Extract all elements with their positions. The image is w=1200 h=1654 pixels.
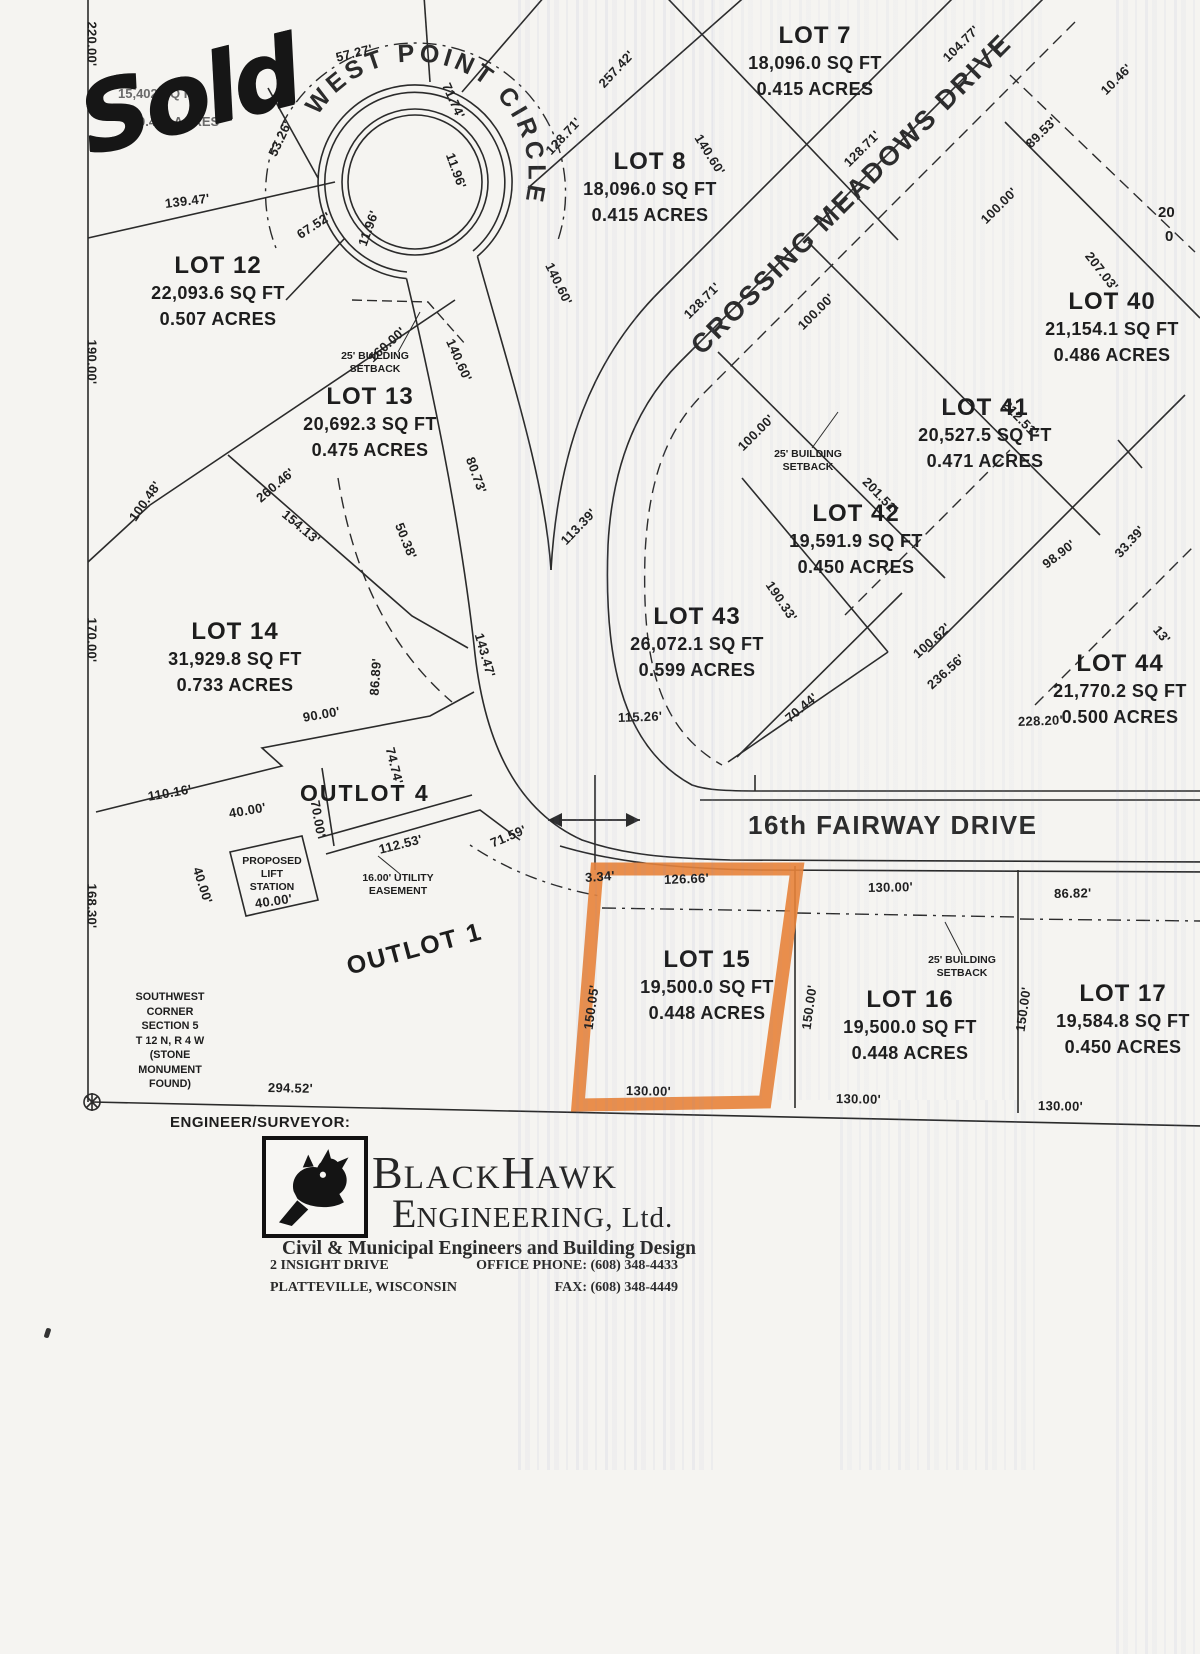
lot-area-acres: 0.599 ACRES xyxy=(630,657,764,683)
firm-address-line1: 2 INSIGHT DRIVE xyxy=(270,1258,389,1274)
dimension-label: 115.26' xyxy=(618,708,663,725)
dimension-label: 3.34' xyxy=(584,868,615,885)
lot-label: LOT 16 19,500.0 SQ FT 0.448 ACRES xyxy=(843,986,977,1066)
monument-note: SOUTHWEST CORNER SECTION 5 T 12 N, R 4 W… xyxy=(136,990,205,1092)
plat-linework: WEST POINT CIRCLE CROSSING MEADOWS DRIVE… xyxy=(0,0,1200,1654)
lot-area-sqft: 22,093.6 SQ FT xyxy=(151,280,285,306)
dimension-label: 130.00' xyxy=(868,879,913,895)
lot-area-sqft: 26,072.1 SQ FT xyxy=(630,631,764,657)
firm-tagline: Civil & Municipal Engineers and Building… xyxy=(282,1238,696,1260)
lot-area-sqft: 21,770.2 SQ FT xyxy=(1053,678,1187,704)
lot-name: LOT 12 xyxy=(151,252,285,280)
lot-area-acres: 0.415 ACRES xyxy=(748,76,882,102)
lot-area-acres: 0.448 ACRES xyxy=(640,1000,774,1026)
dimension-label: 86.82' xyxy=(1054,885,1092,901)
partial-lot-text: 20 xyxy=(1158,204,1175,221)
lot-area-acres: 0.471 ACRES xyxy=(918,448,1052,474)
firm-name-part: NGINEERING, Ltd. xyxy=(416,1202,673,1234)
surveyor-heading: ENGINEER/SURVEYOR: xyxy=(170,1114,350,1131)
lot-name: LOT 7 xyxy=(748,22,882,50)
lot-area-sqft: 18,096.0 SQ FT xyxy=(583,176,717,202)
setback-note-line: SETBACK xyxy=(774,461,842,474)
lot-name: LOT 41 xyxy=(918,394,1052,422)
street-name-16th-fairway-drive: 16th FAIRWAY DRIVE xyxy=(748,810,1038,840)
lot-name: LOT 8 xyxy=(583,148,717,176)
dimension-label: 220.00' xyxy=(85,22,100,67)
dimension-label: 294.52' xyxy=(268,1080,313,1096)
plat-map-page: WEST POINT CIRCLE CROSSING MEADOWS DRIVE… xyxy=(0,0,1200,1654)
dimension-label: 168.30' xyxy=(85,884,100,929)
dimension-label: 190.00' xyxy=(85,340,100,385)
lot-area-sqft: 18,096.0 SQ FT xyxy=(748,50,882,76)
lot-name: LOT 16 xyxy=(843,986,977,1014)
lot-name: LOT 40 xyxy=(1045,288,1179,316)
lot-area-sqft: 31,929.8 SQ FT xyxy=(168,646,302,672)
lot-name: LOT 14 xyxy=(168,618,302,646)
setback-note-line: SETBACK xyxy=(928,967,996,980)
lot-label: LOT 43 26,072.1 SQ FT 0.599 ACRES xyxy=(630,603,764,683)
lot-label: LOT 12 22,093.6 SQ FT 0.507 ACRES xyxy=(151,252,285,332)
dimension-label: 228.20' xyxy=(1018,712,1063,729)
lift-station-line: PROPOSED xyxy=(242,855,302,868)
monument-note-line: T 12 N, R 4 W xyxy=(136,1034,205,1049)
easement-note-line: EASEMENT xyxy=(362,885,433,898)
lot-area-sqft: 19,584.8 SQ FT xyxy=(1056,1008,1190,1034)
monument-note-line: MONUMENT xyxy=(136,1063,205,1078)
two-way-arrow-icon xyxy=(548,813,640,827)
lot-label: LOT 42 19,591.9 SQ FT 0.450 ACRES xyxy=(789,500,923,580)
lot-name: LOT 42 xyxy=(789,500,923,528)
lot-area-sqft: 19,500.0 SQ FT xyxy=(843,1014,977,1040)
lot-area-acres: 0.733 ACRES xyxy=(168,672,302,698)
utility-easement-note: 16.00' UTILITY EASEMENT xyxy=(362,872,433,898)
lot-area-sqft: 19,500.0 SQ FT xyxy=(640,974,774,1000)
lot-label: LOT 14 31,929.8 SQ FT 0.733 ACRES xyxy=(168,618,302,698)
monument-note-line: SECTION 5 xyxy=(136,1019,205,1034)
dimension-label: 126.66' xyxy=(664,870,709,887)
lot-name: LOT 43 xyxy=(630,603,764,631)
lot-area-sqft: 20,692.3 SQ FT xyxy=(303,411,437,437)
lot-name: LOT 13 xyxy=(303,383,437,411)
building-setback-note: 25' BUILDING SETBACK xyxy=(774,448,842,474)
lot-area-acres: 0.500 ACRES xyxy=(1053,704,1187,730)
dimension-label: 170.00' xyxy=(85,618,100,663)
lift-station-line: LIFT xyxy=(242,868,302,881)
dimension-label: 130.00' xyxy=(1038,1098,1083,1114)
monument-note-line: (STONE xyxy=(136,1048,205,1063)
firm-name-part: E xyxy=(392,1191,416,1236)
lot-area-acres: 0.450 ACRES xyxy=(789,554,923,580)
lot-area-acres: 0.450 ACRES xyxy=(1056,1034,1190,1060)
hawk-icon xyxy=(266,1140,356,1226)
easement-note-line: 16.00' UTILITY xyxy=(362,872,433,885)
lot-name: LOT 15 xyxy=(640,946,774,974)
lift-station-line: STATION xyxy=(242,881,302,894)
lot-area-acres: 0.486 ACRES xyxy=(1045,342,1179,368)
lot-area-sqft: 21,154.1 SQ FT xyxy=(1045,316,1179,342)
lot-area-acres: 0.415 ACRES xyxy=(583,202,717,228)
monument-note-line: SOUTHWEST xyxy=(136,990,205,1005)
lot-name: LOT 17 xyxy=(1056,980,1190,1008)
blackhawk-logo xyxy=(262,1136,368,1238)
dimension-label: 130.00' xyxy=(836,1091,881,1107)
firm-fax: FAX: (608) 348-4449 xyxy=(398,1280,678,1296)
lot-area-acres: 0.507 ACRES xyxy=(151,306,285,332)
dimension-label: 86.89' xyxy=(367,658,385,696)
dimension-label: 130.00' xyxy=(626,1083,671,1099)
lot-area-acres: 0.475 ACRES xyxy=(303,437,437,463)
lot-label: LOT 17 19,584.8 SQ FT 0.450 ACRES xyxy=(1056,980,1190,1060)
monument-note-line: FOUND) xyxy=(136,1077,205,1092)
lot-label: LOT 7 18,096.0 SQ FT 0.415 ACRES xyxy=(748,22,882,102)
partial-lot-text: 0 xyxy=(1165,228,1173,245)
setback-note-line: 25' BUILDING xyxy=(928,954,996,967)
lot-label: LOT 40 21,154.1 SQ FT 0.486 ACRES xyxy=(1045,288,1179,368)
lot-label-lot15: LOT 15 19,500.0 SQ FT 0.448 ACRES xyxy=(640,946,774,1026)
lot-label: LOT 44 21,770.2 SQ FT 0.500 ACRES xyxy=(1053,650,1187,730)
firm-name-line2: ENGINEERING, Ltd. xyxy=(392,1190,673,1237)
lot-label: LOT 13 20,692.3 SQ FT 0.475 ACRES xyxy=(303,383,437,463)
lot-area-sqft: 19,591.9 SQ FT xyxy=(789,528,923,554)
lot-label: LOT 8 18,096.0 SQ FT 0.415 ACRES xyxy=(583,148,717,228)
building-setback-note: 25' BUILDING SETBACK xyxy=(928,954,996,980)
setback-note-line: 25' BUILDING xyxy=(774,448,842,461)
firm-phone: OFFICE PHONE: (608) 348-4433 xyxy=(398,1258,678,1274)
monument-note-line: CORNER xyxy=(136,1005,205,1020)
lot-name: LOT 44 xyxy=(1053,650,1187,678)
lot-area-acres: 0.448 ACRES xyxy=(843,1040,977,1066)
lift-station-note: PROPOSED LIFT STATION xyxy=(242,855,302,894)
